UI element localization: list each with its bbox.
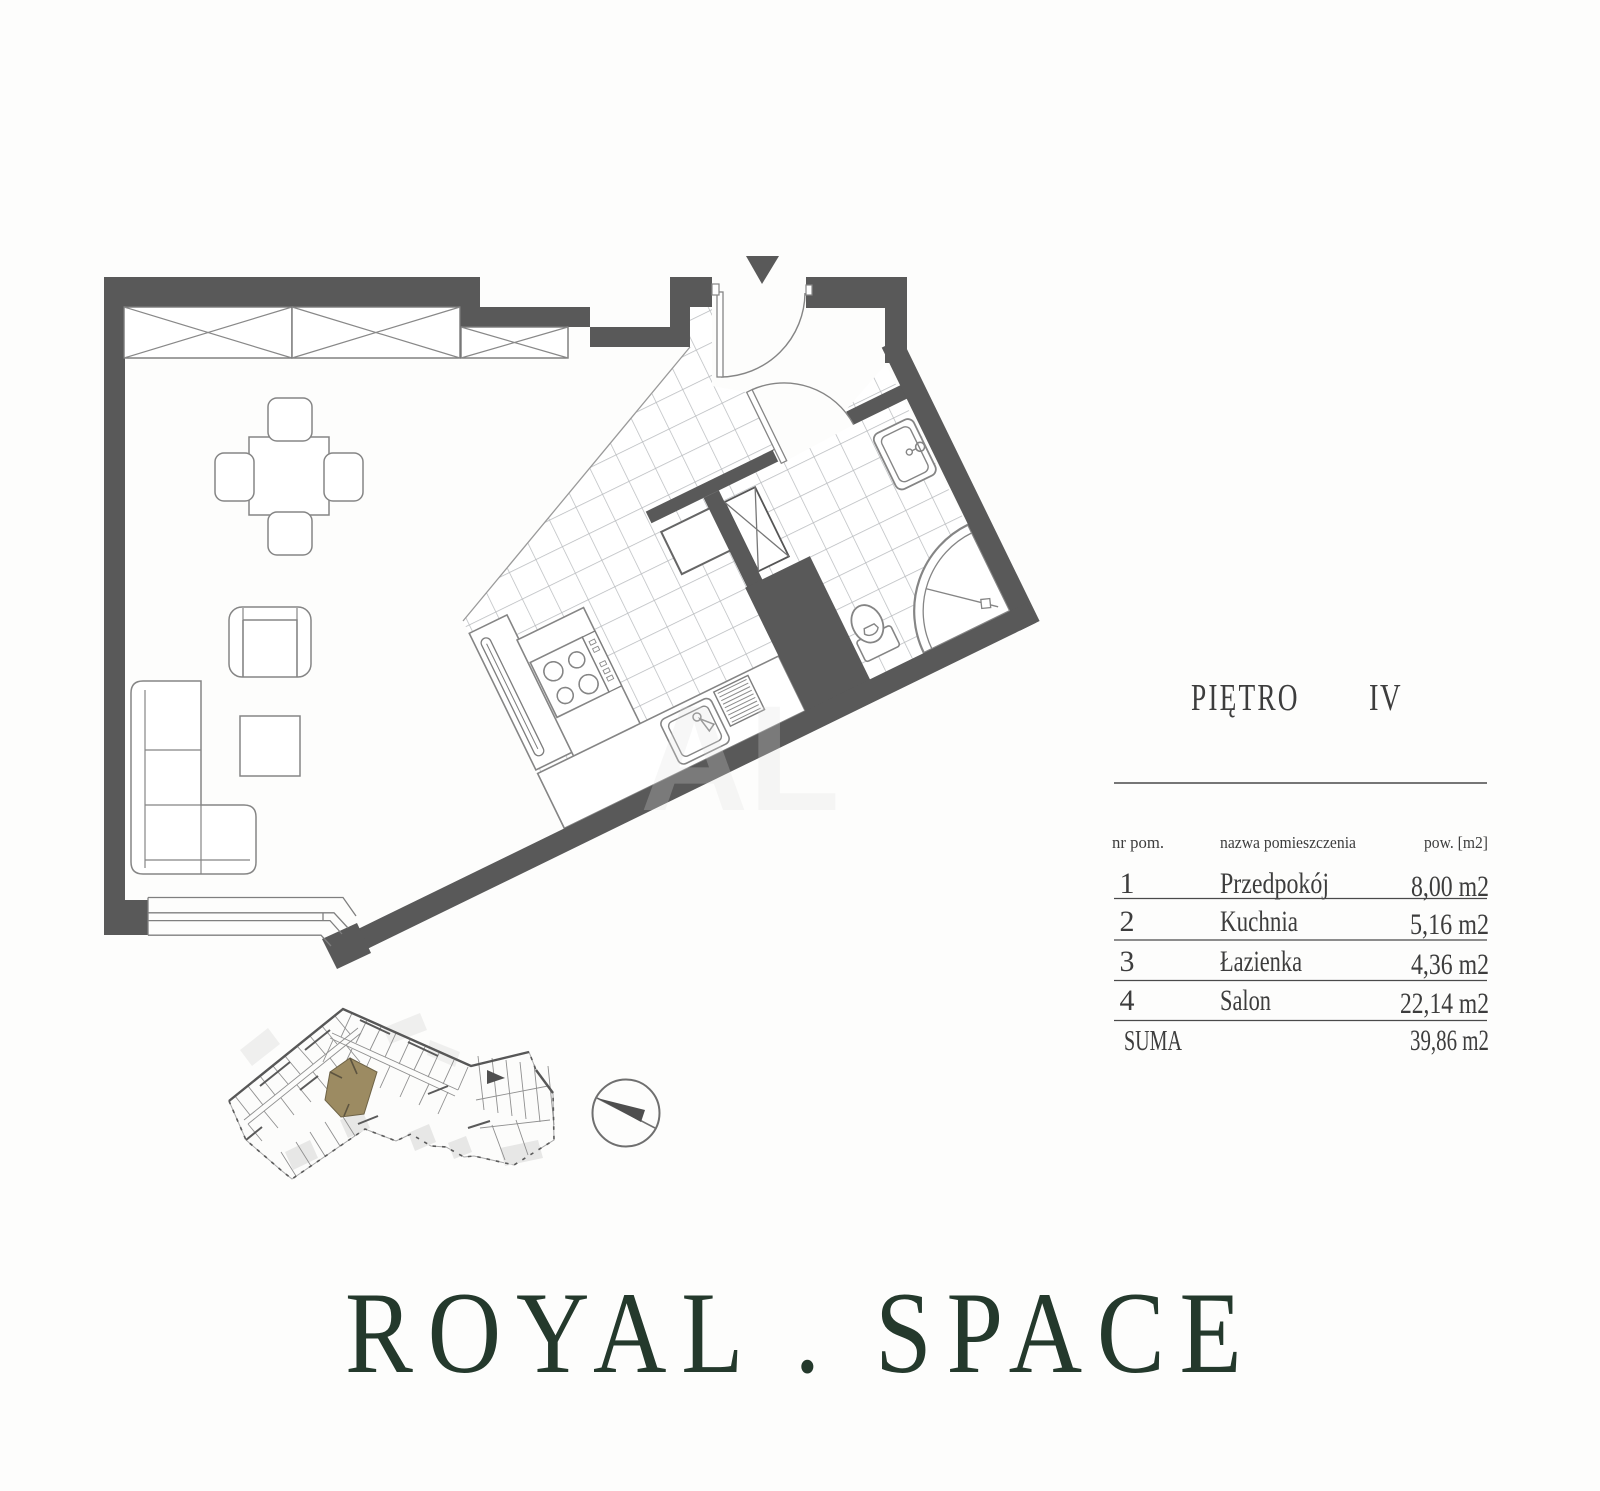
svg-text:Salon: Salon [1220, 984, 1271, 1017]
svg-text:pow. [m2]: pow. [m2] [1424, 833, 1488, 852]
svg-text:SUMA: SUMA [1124, 1026, 1183, 1057]
svg-text:4,36 m2: 4,36 m2 [1411, 948, 1489, 981]
svg-text:4: 4 [1120, 984, 1135, 1017]
svg-text:AL: AL [640, 674, 840, 842]
svg-text:IV: IV [1369, 677, 1402, 719]
svg-text:nr pom.: nr pom. [1112, 833, 1164, 852]
svg-text:3: 3 [1120, 945, 1135, 978]
svg-text:Przedpokój: Przedpokój [1220, 867, 1329, 900]
svg-text:ROYAL . SPACE: ROYAL . SPACE [345, 1267, 1256, 1397]
svg-text:39,86 m2: 39,86 m2 [1410, 1024, 1489, 1057]
svg-text:Łazienka: Łazienka [1220, 945, 1302, 978]
svg-text:Kuchnia: Kuchnia [1220, 905, 1298, 938]
svg-text:5,16 m2: 5,16 m2 [1410, 908, 1489, 941]
svg-text:1: 1 [1120, 867, 1135, 900]
svg-text:22,14 m2: 22,14 m2 [1400, 987, 1489, 1020]
svg-text:2: 2 [1120, 905, 1135, 938]
svg-text:nazwa pomieszczenia: nazwa pomieszczenia [1220, 833, 1356, 852]
svg-text:PIĘTRO: PIĘTRO [1191, 677, 1300, 719]
